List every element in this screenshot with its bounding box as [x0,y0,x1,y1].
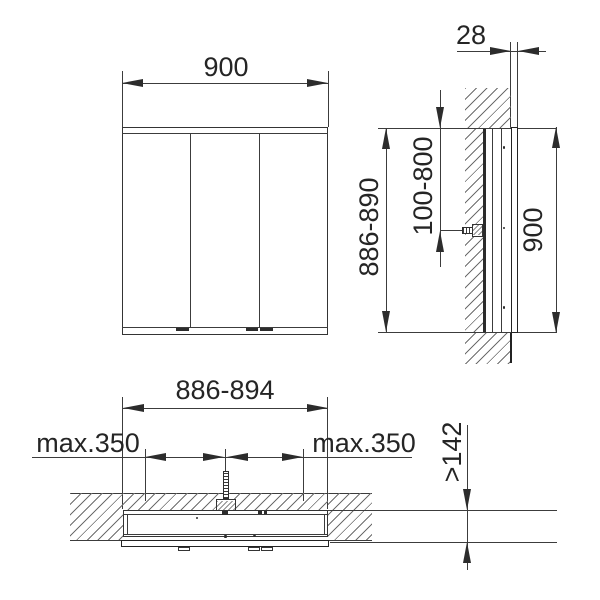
dimension-line [122,83,328,84]
mirror-door-profile [511,127,518,334]
connection-box-hatch [473,225,482,235]
wall-hatch [70,493,123,540]
hinge-mark [264,511,267,514]
mounting-hole-mark [503,227,506,230]
hinge-mark [258,511,263,514]
niche-top-line [378,128,557,129]
extension-line [225,449,226,471]
extension-line [330,542,557,543]
arrowhead-right [203,453,224,461]
niche-depth-dimension-label: >142 [438,382,466,522]
arrowhead-right [307,79,328,87]
door-handle-mark [260,328,273,332]
wall-face-line [510,332,512,363]
centre-mark [222,511,228,515]
wall-hatch [465,332,511,364]
door-handle-plan [261,547,273,552]
connection-cable-icon [223,471,229,499]
door-divider-line [259,133,260,327]
arrowhead-down [382,311,390,332]
protrusion-dimension-label: 28 [411,21,531,49]
door-handle-mark [176,328,189,332]
cabinet-inner-line [492,129,493,332]
technical-drawing-sheet: 900 28 [0,0,600,600]
detail-dot [253,535,256,538]
arrowhead-up [463,542,471,563]
arrowhead-right [307,404,328,412]
cabinet-back-panel [483,129,487,332]
connection-bracket-hatch [217,501,235,510]
front-width-dimension-label: 900 [166,53,286,81]
wall-face-line [329,540,373,541]
wall-hatch [328,493,372,540]
door-handle-mark [246,328,258,332]
mounting-hole-mark [503,146,506,149]
wall-hatch [465,88,511,128]
wall-face-line [70,540,121,541]
cabinet-front-outline [122,127,328,335]
niche-bottom-line [378,332,557,333]
detail-dot [224,535,227,538]
mounting-hole-mark [503,306,506,309]
dimension-line [556,127,557,333]
arrowhead-up [382,128,390,149]
niche-width-dimension-label: 886-894 [145,376,305,404]
arrowhead-left [122,79,143,87]
connection-reference-line [440,230,462,231]
cabinet-top-strip-line [122,133,328,134]
extension-line [517,42,518,127]
cabinet-side-inner-line [127,514,128,535]
cabinet-height-dimension-label: 900 [519,160,547,300]
dimension-line [123,408,328,409]
arrowhead-right [490,47,511,55]
niche-height-dimension-label: 886-890 [355,157,383,297]
arrowhead-left [518,47,539,55]
arrowhead-up [552,127,560,148]
connection-range-dimension-label: 100-800 [409,116,437,256]
arrowhead-down [552,312,560,333]
door-handle-plan [178,547,190,552]
dimension-line [386,128,387,332]
cabinet-inner-line [501,129,502,332]
cabinet-bottom-strip-line [122,327,328,328]
offset-right-dimension-label: max.350 [284,429,444,457]
mirror-door-plan [121,540,329,547]
door-divider-line [190,133,191,327]
arrowhead-left [227,453,248,461]
arrowhead-right [282,453,303,461]
arrowhead-left [145,453,166,461]
door-handle-plan [248,547,260,552]
arrowhead-left [123,404,144,412]
cabinet-side-inner-line [324,514,325,535]
